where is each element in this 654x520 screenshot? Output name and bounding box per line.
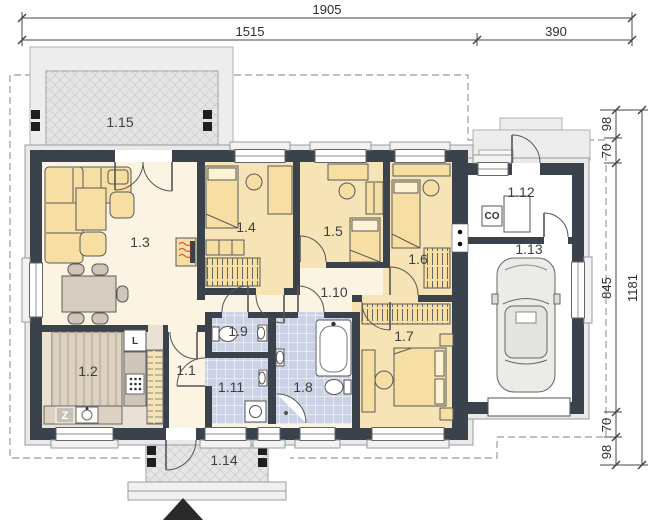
desk: [268, 166, 292, 214]
toilet-tank: [212, 327, 219, 341]
label-bedroom-1-6: 1.6: [408, 251, 428, 267]
desk: [328, 164, 368, 180]
terrace-column: [31, 122, 40, 131]
porch: [128, 440, 286, 520]
terrace: [30, 47, 233, 150]
label-utility: 1.12: [507, 184, 534, 200]
dim-right-total: 1181: [625, 274, 640, 302]
toilet-tank: [344, 380, 351, 394]
label-bedroom-1-5: 1.5: [323, 223, 343, 239]
car: [492, 258, 560, 392]
label-kitchen: 1.2: [78, 363, 98, 379]
window-bedroom-1-4: [230, 142, 290, 163]
porch-column: [147, 446, 156, 455]
chair: [246, 174, 262, 190]
dim-right-seg1: 98: [599, 117, 614, 131]
dim-top-total: 1905: [313, 2, 342, 17]
label-bathroom-1-11: 1.11: [218, 379, 244, 395]
utility-cabinet: [504, 196, 530, 232]
fireplace: [176, 238, 196, 266]
north-arrow-icon: [163, 498, 203, 520]
label-bathroom-1-8: 1.8: [293, 379, 313, 395]
toilet: [325, 380, 343, 395]
window-bedroom-1-7: [367, 428, 449, 449]
dim-top-right: 390: [545, 24, 567, 39]
chair: [339, 183, 355, 199]
label-bedroom-1-4: 1.4: [236, 219, 256, 235]
window-living: [22, 258, 43, 322]
label-porch: 1.14: [210, 452, 237, 468]
label-wc: 1.9: [228, 323, 248, 339]
utility-passage: [452, 224, 468, 252]
terrace-column: [203, 122, 212, 131]
label-corridor: 1.10: [320, 284, 347, 300]
coffee-table: [76, 188, 106, 230]
window-kitchen: [51, 428, 118, 449]
label-garage: 1.13: [515, 241, 542, 257]
terrace-column: [203, 110, 212, 119]
porch-column: [258, 458, 267, 467]
label-fridge: L: [132, 336, 138, 347]
window-bedroom-1-5: [310, 142, 371, 163]
terrace-column: [31, 110, 40, 119]
dim-right-seg4: 70: [599, 418, 614, 432]
porch-column: [147, 458, 156, 467]
label-dishwasher: Z: [62, 410, 69, 422]
dim-right-seg2: 70: [599, 144, 614, 158]
chair: [423, 180, 439, 196]
dim-right-seg3: 845: [599, 277, 614, 299]
window-bedroom-1-6: [390, 142, 450, 163]
label-boiler: CO: [485, 211, 500, 222]
floor-plan-drawing: 1.15 1.3 1.2 1.1 1.4 1.5 1.6 1.10 1.9 1.…: [0, 0, 654, 520]
window-garage: [572, 257, 593, 323]
dresser: [206, 240, 244, 255]
label-living: 1.3: [130, 234, 150, 250]
entry-canopy: [473, 118, 590, 160]
nightstand: [440, 334, 453, 346]
armchair: [110, 192, 134, 218]
label-terrace: 1.15: [106, 114, 133, 130]
window-bathroom-1-11: [200, 428, 251, 449]
window-bathroom-1-8-a: [253, 428, 285, 449]
chair: [375, 371, 393, 389]
floor-plan-svg: 1.15 1.3 1.2 1.1 1.4 1.5 1.6 1.10 1.9 1.…: [0, 0, 654, 520]
shelf: [393, 164, 450, 176]
armchair: [80, 232, 106, 256]
window-bathroom-1-8-b: [295, 428, 340, 449]
garage-door: [488, 398, 570, 416]
dim-right-seg5: 98: [599, 445, 614, 459]
dim-top-left: 1515: [236, 24, 265, 39]
window-utility: [473, 155, 513, 176]
desk: [362, 350, 375, 412]
label-bedroom-1-7: 1.7: [394, 328, 414, 344]
label-hall: 1.1: [176, 362, 196, 378]
bathtub: [316, 320, 351, 376]
nightstand: [440, 408, 453, 420]
washing-machine: [245, 401, 266, 422]
